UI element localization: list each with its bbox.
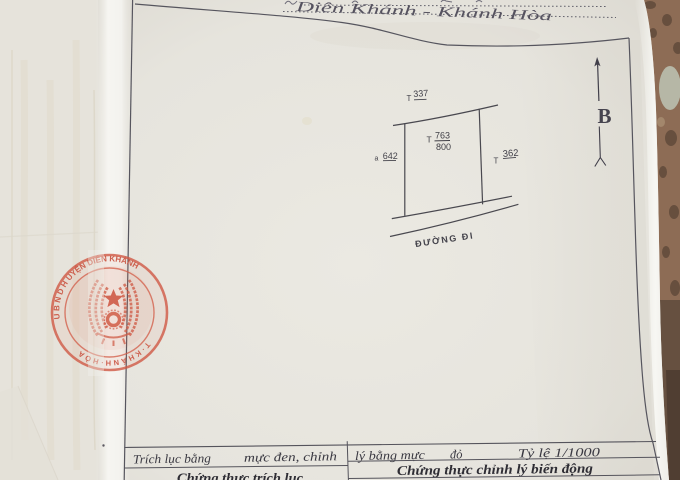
svg-text:337: 337: [413, 88, 429, 99]
svg-text:642: 642: [383, 151, 398, 161]
svg-text:a: a: [375, 156, 379, 163]
svg-text:B: B: [598, 104, 612, 128]
svg-text:T: T: [407, 94, 412, 103]
svg-text:800: 800: [436, 142, 451, 152]
svg-text:Chứng thực trích lục: Chứng thực trích lục: [177, 472, 304, 480]
svg-text:Chứng thực chỉnh lý biến động: Chứng thực chỉnh lý biến động: [397, 461, 593, 478]
svg-text:763: 763: [435, 131, 450, 141]
svg-text:Trích lục bằng: Trích lục bằng: [133, 451, 211, 466]
svg-text:mực đen, chỉnh: mực đen, chỉnh: [244, 449, 337, 464]
svg-text:T: T: [494, 157, 499, 166]
svg-text:T: T: [427, 135, 432, 145]
